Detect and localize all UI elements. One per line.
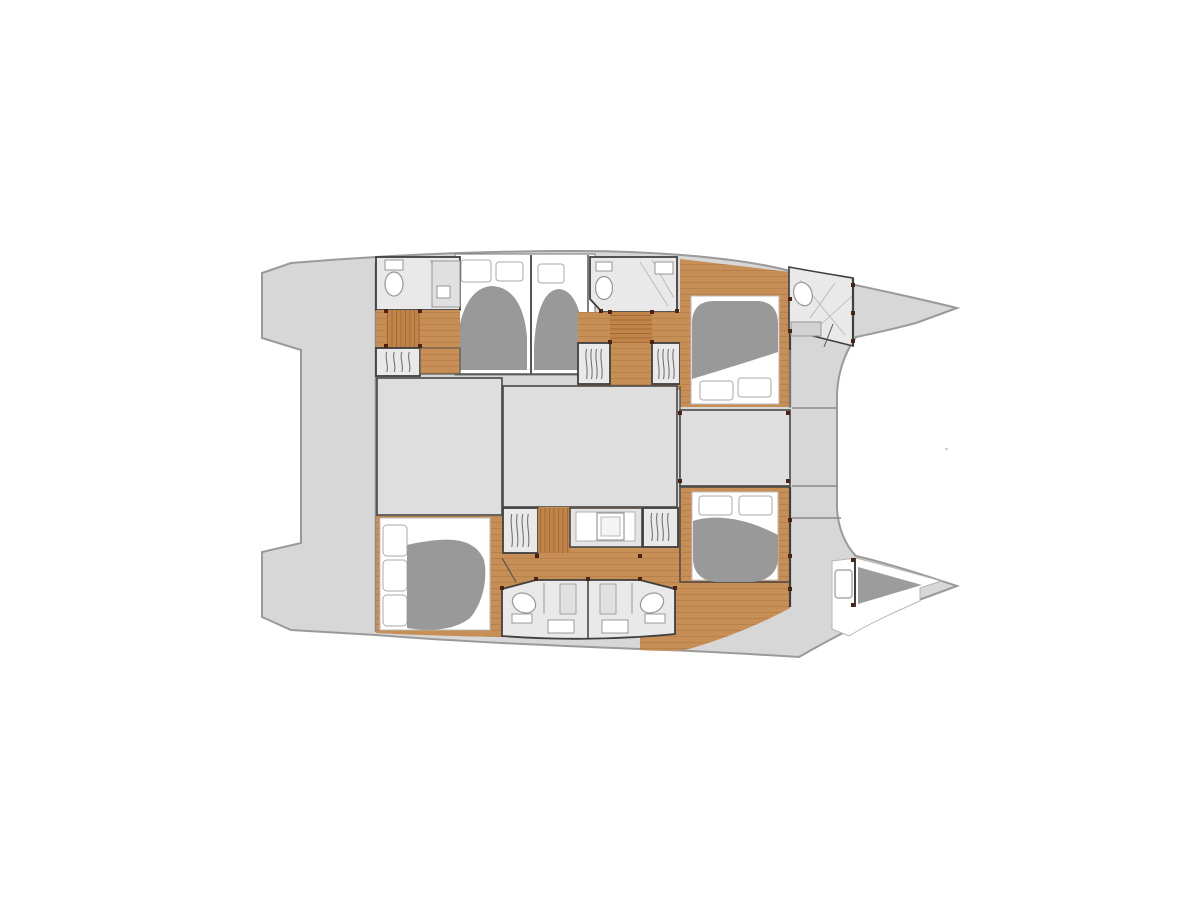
cabinet-port-aft-texture	[420, 348, 460, 374]
foredeck-room	[680, 410, 790, 486]
pillow-owner-3	[383, 595, 407, 626]
toilet-port-aft-bowl	[385, 272, 403, 296]
stairs-port-mid-texture	[610, 312, 652, 343]
print-speck	[945, 448, 948, 450]
pillow-bow-port-1	[700, 381, 733, 400]
shower-bench-right	[600, 584, 616, 614]
toilet-port-mid-bowl	[596, 277, 613, 300]
pillow-bow-starboard-2	[739, 496, 772, 515]
forepeak-hatch	[835, 570, 852, 598]
wardrobe-port-mid-left	[578, 343, 610, 384]
sink-starboard-right	[602, 620, 628, 633]
pillow-owner-1	[383, 525, 407, 556]
toilet-port-mid-tank	[596, 262, 612, 271]
sink-port-aft-basin	[437, 286, 450, 298]
bridgedeck-room-main	[503, 386, 677, 507]
wardrobe-starboard-right	[643, 508, 678, 547]
stairs-starboard-texture	[538, 508, 570, 553]
wardrobe-starboard-left	[503, 508, 538, 553]
shower-bench-left	[560, 584, 576, 614]
floor-plan-svg	[0, 0, 1200, 900]
wardrobe-port-mid-right	[652, 343, 680, 384]
stairs-port-aft-texture	[386, 310, 420, 347]
pillow-port-mid	[538, 264, 564, 283]
pillow-bow-port-2	[738, 378, 771, 397]
wardrobe-port-aft	[376, 348, 420, 376]
toilet-starboard-right-base	[645, 614, 665, 623]
shapes-root	[262, 251, 957, 657]
pillow-bow-starboard-1	[699, 496, 732, 515]
pillow-port-aft-1	[461, 260, 491, 282]
sink-starboard-left	[548, 620, 574, 633]
bridgedeck-room-aft	[377, 378, 502, 515]
toilet-starboard-left-base	[512, 614, 532, 623]
sink-port-mid	[655, 262, 673, 274]
catamaran-floor-plan	[0, 0, 1200, 900]
toilet-port-aft-tank	[385, 260, 403, 270]
pillow-owner-2	[383, 560, 407, 591]
vanity-sink-basin	[601, 517, 620, 536]
pillow-port-aft-2	[496, 262, 523, 281]
sink-port-aft-counter	[432, 261, 460, 307]
sink-bow-port	[791, 322, 821, 336]
